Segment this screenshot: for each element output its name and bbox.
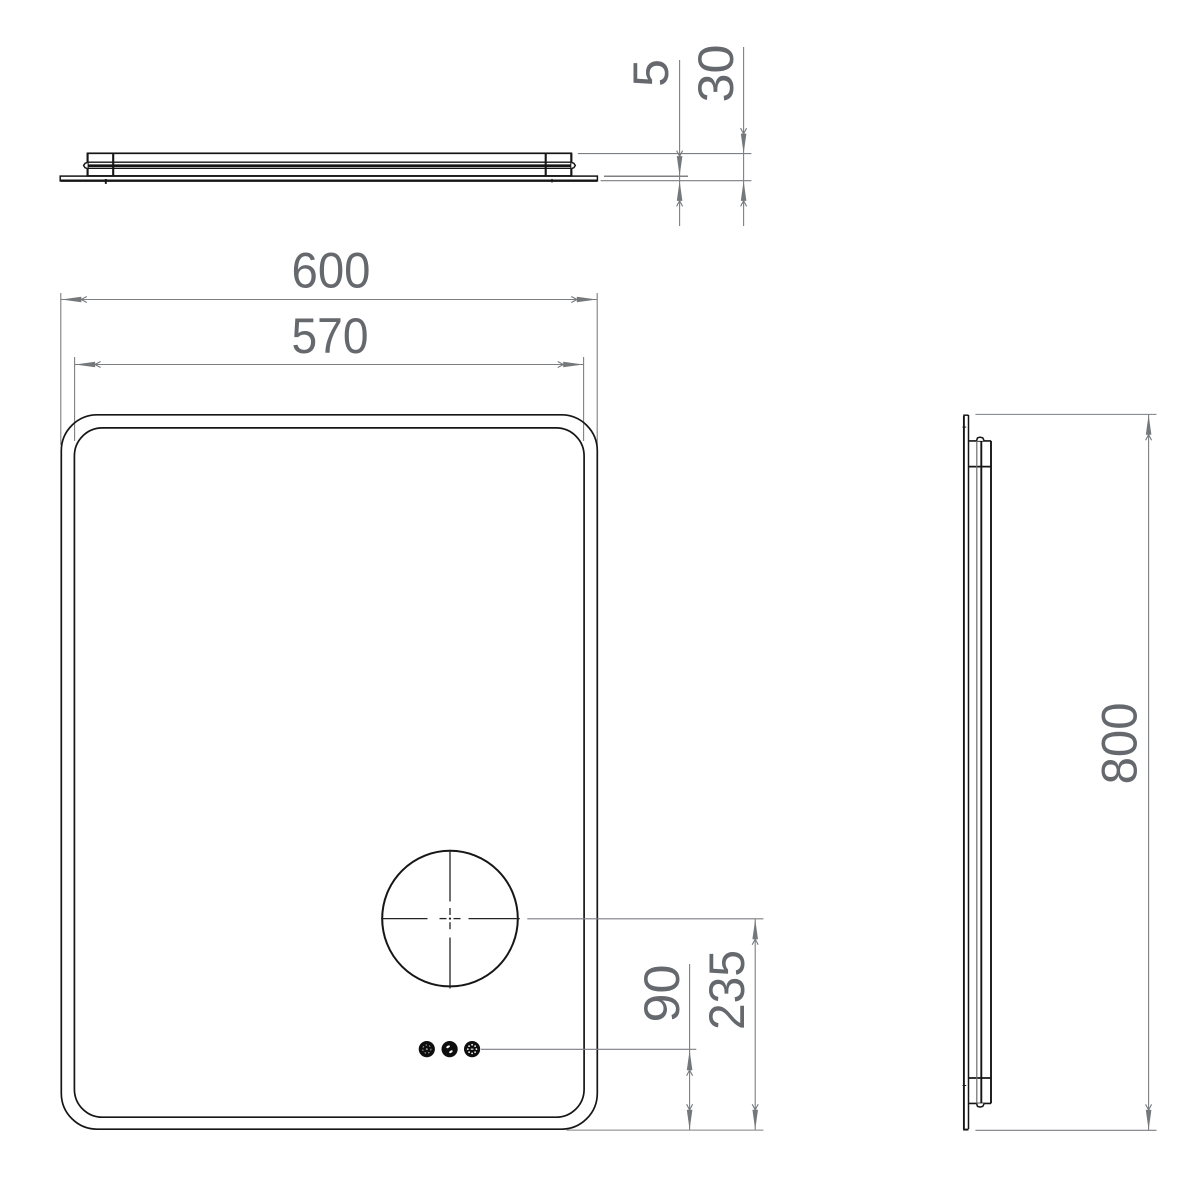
svg-text:30: 30 [688,45,744,103]
svg-text:235: 235 [699,950,755,1030]
svg-text:800: 800 [1092,702,1148,784]
svg-text:5: 5 [623,59,679,87]
svg-text:570: 570 [292,308,369,364]
svg-text:90: 90 [634,965,690,1023]
svg-text:600: 600 [292,243,371,299]
